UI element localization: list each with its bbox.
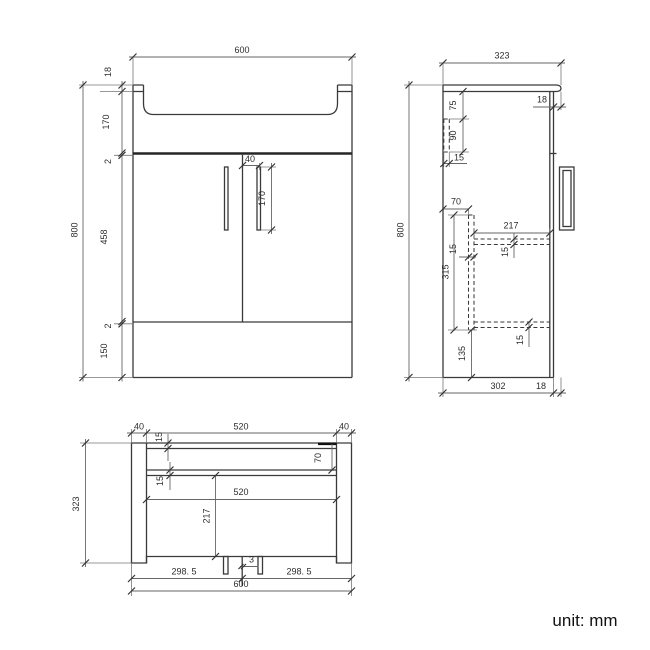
- side-divider-height-label: 315: [441, 264, 451, 279]
- left-door-handle: [225, 167, 229, 230]
- plan-left-handle: [224, 557, 229, 575]
- plan-depth-dimension: 323: [71, 439, 132, 567]
- side-divider-height-dimension: 315: [441, 212, 478, 334]
- plan-back-thickness-dimension: 15: [154, 432, 172, 461]
- plan-rail-offset-label: 70: [313, 453, 323, 463]
- plan-door-gap-label: 3: [249, 555, 254, 565]
- side-outline: [443, 85, 561, 378]
- side-divider-thickness-dimension: 15: [448, 244, 478, 261]
- plan-opening-mid-label: 520: [233, 487, 248, 497]
- plan-rail-thickness-label: 15: [155, 476, 165, 486]
- side-shelf-thickness-label: 15: [500, 247, 510, 257]
- side-bottom-dimensions: 302 18: [438, 378, 566, 398]
- side-overhang-label: 18: [537, 95, 547, 105]
- front-handle-offset-label: 40: [245, 154, 255, 164]
- plan-gable-left-label: 40: [134, 422, 144, 432]
- side-divider-thickness-label: 15: [448, 244, 458, 254]
- plan-opening-mid-dimension: 520: [143, 487, 340, 503]
- front-width-label: 600: [234, 45, 249, 55]
- side-door-handle: [560, 167, 575, 230]
- plan-depth-label: 323: [71, 496, 81, 511]
- side-shelf-thickness-dimension: 15: [500, 233, 518, 258]
- front-basin-label: 170: [101, 114, 111, 129]
- side-bottom-clearance-label: 135: [457, 346, 467, 361]
- hidden-divider-panel: [469, 215, 475, 330]
- side-height-label: 800: [396, 222, 406, 237]
- plan-interior-depth-dimension: 217: [202, 472, 220, 560]
- side-shelf-depth-label: 217: [503, 221, 518, 231]
- front-door-height-label: 458: [99, 229, 109, 244]
- side-rail-height-label: 90: [448, 130, 458, 140]
- front-height-label: 800: [70, 222, 80, 237]
- plan-opening-width-label: 520: [233, 422, 248, 432]
- vanity-unit-drawing: 600 800 18 170 2 458 2 150 40: [0, 0, 650, 650]
- side-rail-drop-label: 75: [448, 100, 458, 110]
- side-depth-dimension: 323: [439, 51, 565, 86]
- plan-door-right-label: 298. 5: [286, 567, 311, 577]
- plan-back-thickness-label: 15: [154, 432, 164, 442]
- front-dimension-chain: 18 170 2 458 2 150: [99, 67, 133, 382]
- plan-right-handle: [258, 557, 263, 575]
- side-section-view: 323 800 18 75 90 15: [396, 51, 575, 398]
- plan-width-label: 600: [233, 579, 248, 589]
- technical-drawing-page: 600 800 18 170 2 458 2 150 40: [0, 0, 650, 650]
- plan-width-dimension: 600: [128, 579, 355, 595]
- side-divider-offset-dimension: 70: [440, 197, 473, 216]
- front-width-dimension: 600: [129, 45, 356, 85]
- hidden-bottom-shelf: [474, 322, 550, 328]
- plan-door-left-label: 298. 5: [171, 567, 196, 577]
- front-gap-top-label: 2: [103, 159, 113, 164]
- plan-gable-right-label: 40: [339, 422, 349, 432]
- front-handle-length-label: 170: [257, 191, 267, 206]
- side-front-overhang-label: 18: [536, 381, 546, 391]
- basin-bowl-profile: [144, 85, 338, 115]
- unit-note: unit: mm: [552, 611, 617, 630]
- side-body-depth-label: 302: [490, 381, 505, 391]
- front-gap-bottom-label: 2: [103, 323, 113, 328]
- side-rail-thickness-label: 15: [454, 153, 464, 163]
- front-rim-label: 18: [103, 67, 113, 77]
- plan-interior-depth-label: 217: [202, 508, 212, 523]
- plan-view: 40 520 40 15 70 15 520: [71, 422, 356, 597]
- side-bottom-clearance-dimension: 135: [457, 327, 475, 382]
- side-shelf-depth-dimension: 217: [471, 221, 554, 240]
- side-height-dimension: 800: [396, 81, 444, 382]
- side-bottom-shelf-thickness-label: 15: [515, 335, 525, 345]
- front-elevation-view: 600 800 18 170 2 458 2 150 40: [70, 45, 357, 382]
- side-bottom-shelf-thickness-dimension: 15: [515, 319, 533, 348]
- front-plinth-label: 150: [99, 343, 109, 358]
- side-depth-label: 323: [494, 51, 509, 61]
- side-divider-offset-label: 70: [451, 197, 461, 207]
- side-rail-dimensions: 75 90 15: [440, 88, 469, 167]
